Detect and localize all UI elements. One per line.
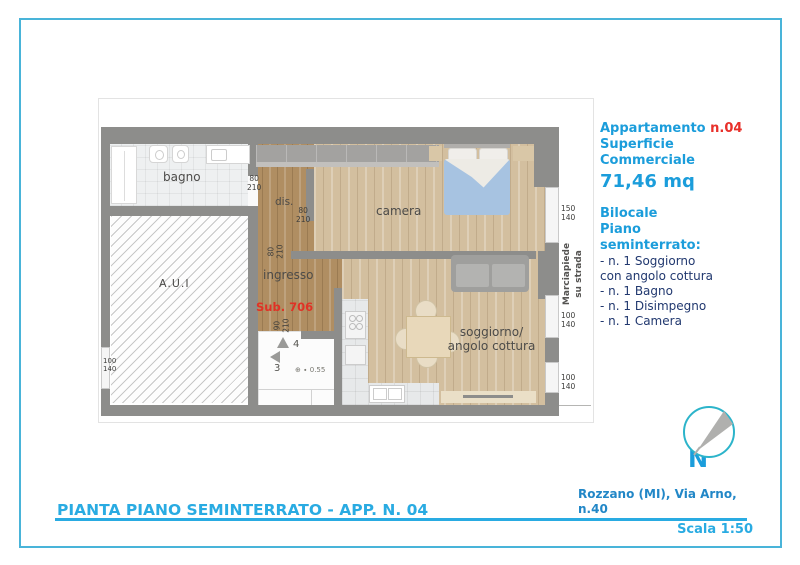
info-panel: Appartamento n.04 Superficie Commerciale… — [600, 121, 780, 329]
sidewalk-edge-line — [559, 405, 591, 406]
type-line-1: Bilocale — [600, 206, 780, 222]
stair-step-number-low: 3 — [274, 363, 280, 374]
level-marker-icon: ⊕ — [295, 366, 301, 374]
room-label-ingresso: ingresso — [263, 268, 313, 282]
wardrobe — [256, 145, 439, 167]
dim-window-camera: 150140 — [561, 205, 575, 222]
sidewalk-line2: su strada — [574, 250, 584, 298]
surface-label-1: Superficie — [600, 137, 780, 153]
duvet-fold — [444, 159, 510, 189]
dim-dis-door: 80210 — [296, 207, 310, 224]
soggiorno-line1: soggiorno/ — [460, 325, 523, 339]
shower — [111, 146, 137, 204]
stair-step-number-high: 4 — [293, 339, 299, 350]
stair-step-line — [258, 389, 334, 390]
soggiorno-line2: angolo cottura — [448, 339, 536, 353]
room-label-dis: dis. — [275, 196, 293, 208]
room-label-aui: A.U.I — [159, 277, 190, 290]
dim-bagno-door: 80210 — [247, 175, 261, 192]
level-value: 0.55 — [310, 366, 326, 374]
surface-value: 71,46 mq — [600, 171, 780, 193]
room-label-camera: camera — [376, 204, 421, 218]
dim-window-living-1: 100140 — [561, 312, 575, 329]
feature-camera: - n. 1 Camera — [600, 314, 780, 329]
sheet-title: PIANTA PIANO SEMINTERRATO - APP. N. 04 — [57, 501, 428, 519]
room-label-soggiorno: soggiorno/ angolo cottura — [429, 325, 554, 353]
wall-corner-pillar — [534, 144, 545, 187]
scale-label: Scala 1:50 — [613, 522, 753, 537]
feature-soggiorno: - n. 1 Soggiorno — [600, 254, 780, 269]
address-block: Rozzano (MI), Via Arno, n.40 — [578, 487, 748, 517]
floorplan-sheet: 4 3 ⊕ ∙ 0.55 bagno dis. camera ingresso … — [0, 0, 800, 565]
apartment-number: n.04 — [710, 121, 742, 136]
wall-pilaster — [538, 251, 545, 299]
stair-arrow-left-icon — [270, 351, 280, 363]
sliding-door — [441, 391, 536, 403]
nightstand-left — [429, 146, 442, 161]
dim-stair-door: 90210 — [273, 311, 290, 341]
wall-top — [101, 127, 559, 144]
apartment-label: Appartamento — [600, 121, 706, 136]
apartment-heading: Appartamento n.04 — [600, 121, 780, 137]
toilet — [149, 145, 168, 163]
cooktop — [345, 311, 366, 339]
dim-window-living-2: 100140 — [561, 374, 575, 391]
bed — [444, 159, 510, 215]
appliance — [345, 345, 366, 365]
kitchen-sink — [369, 385, 405, 403]
sidewalk-label: Marciapiede su strada — [561, 242, 587, 306]
address-line2: n.40 — [578, 502, 608, 516]
wall-bagno-aui — [101, 206, 258, 216]
sidewalk-line1: Marciapiede — [562, 243, 572, 305]
washbasin-counter — [206, 145, 250, 164]
type-line-2: Piano — [600, 222, 780, 238]
sliding-door-handle — [463, 395, 513, 398]
address-line1: Rozzano (MI), Via Arno, — [578, 487, 737, 501]
feature-disimpegno: - n. 1 Disimpegno — [600, 299, 780, 314]
wall-bottom — [101, 405, 559, 416]
sofa — [451, 255, 529, 292]
floorplan-drawing: 4 3 ⊕ ∙ 0.55 bagno dis. camera ingresso … — [98, 98, 594, 423]
type-line-3: seminterrato: — [600, 238, 780, 254]
wall-kitchen — [334, 288, 342, 405]
window-living-2 — [545, 362, 559, 393]
dim-window-left: 100140 — [103, 357, 116, 373]
level-dot-icon: ∙ — [303, 366, 307, 374]
nightstand-right — [513, 146, 534, 161]
feature-bagno: - n. 1 Bagno — [600, 284, 780, 299]
feature-soggiorno-cont: con angolo cottura — [600, 269, 780, 284]
surface-label-2: Commerciale — [600, 153, 780, 169]
stair-step-divider — [311, 389, 312, 405]
dim-ingresso-door: 80210 — [267, 237, 284, 267]
room-label-bagno: bagno — [163, 170, 201, 184]
level-marker: ⊕ ∙ 0.55 — [295, 366, 325, 374]
window-camera — [545, 187, 559, 243]
wall-stair-top — [301, 331, 334, 339]
bidet — [172, 145, 189, 163]
aui-hatched-area — [111, 216, 248, 403]
compass-icon — [682, 403, 742, 467]
